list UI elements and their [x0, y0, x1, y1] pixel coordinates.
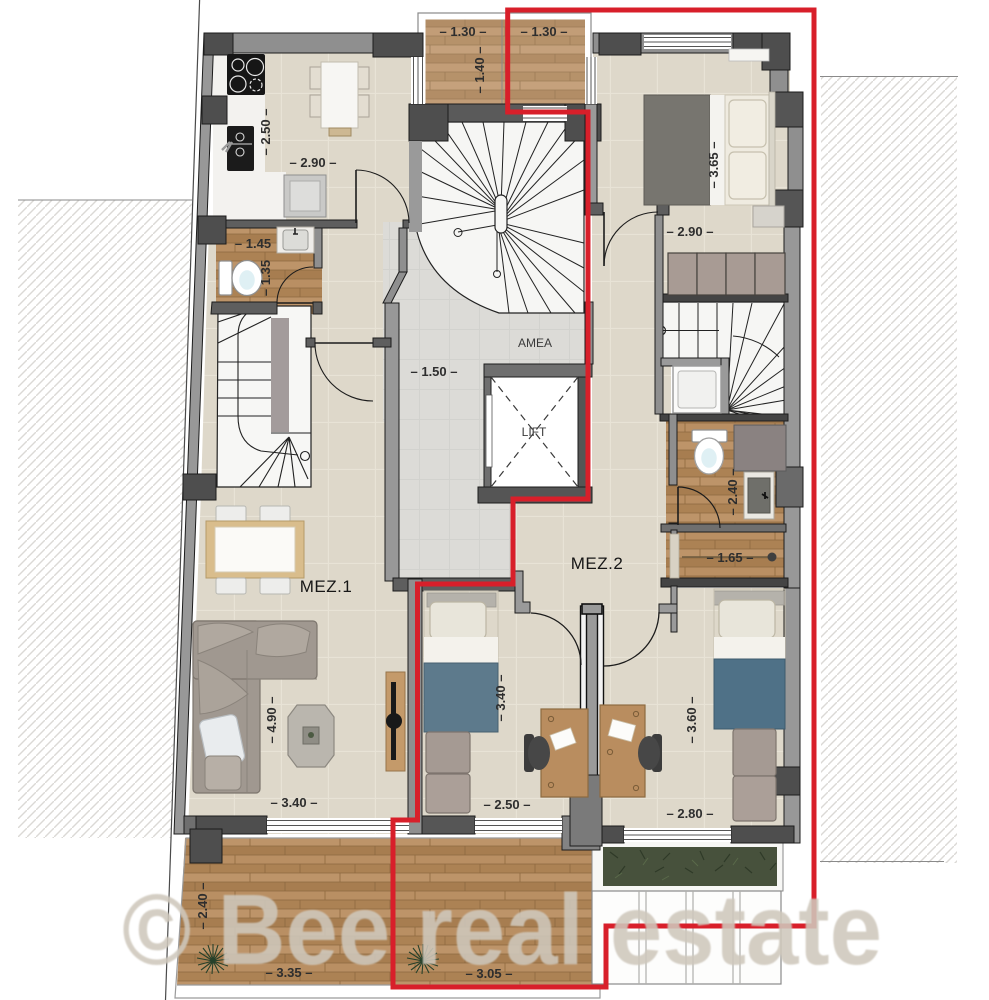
svg-text:– 3.40 –: – 3.40 –: [493, 675, 508, 722]
svg-text:AMEA: AMEA: [518, 336, 552, 350]
svg-text:– 2.80 –: – 2.80 –: [667, 806, 714, 821]
svg-text:– 1.50 –: – 1.50 –: [411, 364, 458, 379]
svg-text:– 4.90 –: – 4.90 –: [264, 697, 279, 744]
svg-text:– 2.50 –: – 2.50 –: [258, 109, 273, 156]
svg-text:– 2.90 –: – 2.90 –: [667, 224, 714, 239]
svg-text:– 1.30 –: – 1.30 –: [521, 24, 568, 39]
svg-text:– 1.45: – 1.45: [235, 236, 271, 251]
svg-text:MEZ.2: MEZ.2: [571, 554, 624, 573]
svg-text:– 2.40 –: – 2.40 –: [725, 469, 740, 516]
svg-text:– 2.50 –: – 2.50 –: [484, 797, 531, 812]
svg-text:– 2.90 –: – 2.90 –: [290, 155, 337, 170]
svg-text:– 1.35: – 1.35: [258, 260, 273, 296]
svg-text:© Bee real estate: © Bee real estate: [122, 874, 882, 986]
svg-text:– 1.65 –: – 1.65 –: [707, 550, 754, 565]
svg-text:– 3.65 –: – 3.65 –: [706, 142, 721, 189]
svg-text:– 1.40 –: – 1.40 –: [472, 47, 487, 94]
svg-text:– 3.60 –: – 3.60 –: [684, 697, 699, 744]
svg-text:– 1.30 –: – 1.30 –: [440, 24, 487, 39]
svg-text:LIFT: LIFT: [522, 425, 547, 439]
svg-text:– 3.40 –: – 3.40 –: [271, 795, 318, 810]
svg-text:MEZ.1: MEZ.1: [300, 577, 353, 596]
